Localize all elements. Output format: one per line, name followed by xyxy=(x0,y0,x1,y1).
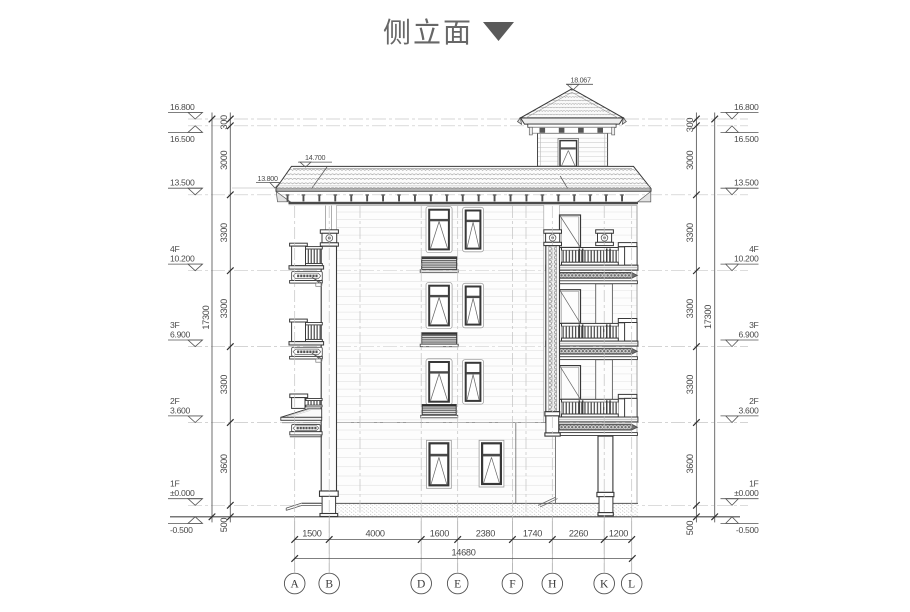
svg-text:16.500: 16.500 xyxy=(170,134,195,144)
svg-text:±0.000: ±0.000 xyxy=(734,488,759,498)
svg-text:300: 300 xyxy=(219,115,229,130)
svg-text:±0.000: ±0.000 xyxy=(170,488,195,498)
svg-text:1F: 1F xyxy=(749,479,758,489)
svg-text:侧立面: 侧立面 xyxy=(383,17,473,48)
svg-text:3600: 3600 xyxy=(219,454,229,473)
svg-text:500: 500 xyxy=(219,518,229,533)
svg-text:3300: 3300 xyxy=(219,299,229,318)
svg-text:16.800: 16.800 xyxy=(170,102,195,112)
svg-text:3.600: 3.600 xyxy=(170,405,191,415)
svg-text:10.200: 10.200 xyxy=(170,254,195,264)
svg-text:3300: 3300 xyxy=(685,299,695,318)
svg-text:2F: 2F xyxy=(749,396,758,406)
svg-text:1200: 1200 xyxy=(609,528,628,538)
svg-text:H: H xyxy=(548,579,556,591)
svg-text:3600: 3600 xyxy=(685,454,695,473)
svg-text:3300: 3300 xyxy=(219,223,229,242)
svg-text:4F: 4F xyxy=(170,244,179,254)
svg-text:-0.500: -0.500 xyxy=(170,525,193,535)
svg-text:6.900: 6.900 xyxy=(738,330,759,340)
svg-text:2380: 2380 xyxy=(476,528,495,538)
svg-text:D: D xyxy=(417,579,425,591)
svg-text:500: 500 xyxy=(685,521,695,536)
svg-text:17300: 17300 xyxy=(201,305,211,329)
svg-text:13.500: 13.500 xyxy=(170,178,195,188)
svg-text:3000: 3000 xyxy=(219,150,229,169)
svg-text:F: F xyxy=(509,579,515,591)
svg-text:3.600: 3.600 xyxy=(738,405,759,415)
svg-text:6.900: 6.900 xyxy=(170,330,191,340)
svg-text:4F: 4F xyxy=(749,244,758,254)
svg-text:16.800: 16.800 xyxy=(734,102,759,112)
svg-text:14.700: 14.700 xyxy=(305,153,325,162)
svg-text:1600: 1600 xyxy=(430,528,449,538)
svg-text:14680: 14680 xyxy=(451,547,475,557)
svg-text:3300: 3300 xyxy=(685,223,695,242)
svg-text:17300: 17300 xyxy=(703,305,713,329)
svg-text:4000: 4000 xyxy=(365,528,384,538)
svg-text:1740: 1740 xyxy=(523,528,542,538)
svg-text:3F: 3F xyxy=(170,320,179,330)
svg-text:13.800: 13.800 xyxy=(258,174,278,183)
svg-text:1500: 1500 xyxy=(302,528,321,538)
svg-text:B: B xyxy=(325,579,333,591)
svg-text:K: K xyxy=(600,579,609,591)
svg-text:16.500: 16.500 xyxy=(734,134,759,144)
svg-text:13.500: 13.500 xyxy=(734,178,759,188)
svg-text:2F: 2F xyxy=(170,396,179,406)
svg-text:A: A xyxy=(291,579,300,591)
svg-text:1F: 1F xyxy=(170,479,179,489)
svg-text:3300: 3300 xyxy=(685,375,695,394)
svg-text:L: L xyxy=(628,579,635,591)
svg-text:3000: 3000 xyxy=(685,150,695,169)
svg-text:18.067: 18.067 xyxy=(571,76,591,85)
svg-text:3300: 3300 xyxy=(219,375,229,394)
svg-text:3F: 3F xyxy=(749,320,758,330)
svg-text:300: 300 xyxy=(685,118,695,133)
svg-text:10.200: 10.200 xyxy=(734,254,759,264)
svg-text:E: E xyxy=(454,579,461,591)
svg-text:-0.500: -0.500 xyxy=(736,525,759,535)
svg-text:2260: 2260 xyxy=(569,528,588,538)
